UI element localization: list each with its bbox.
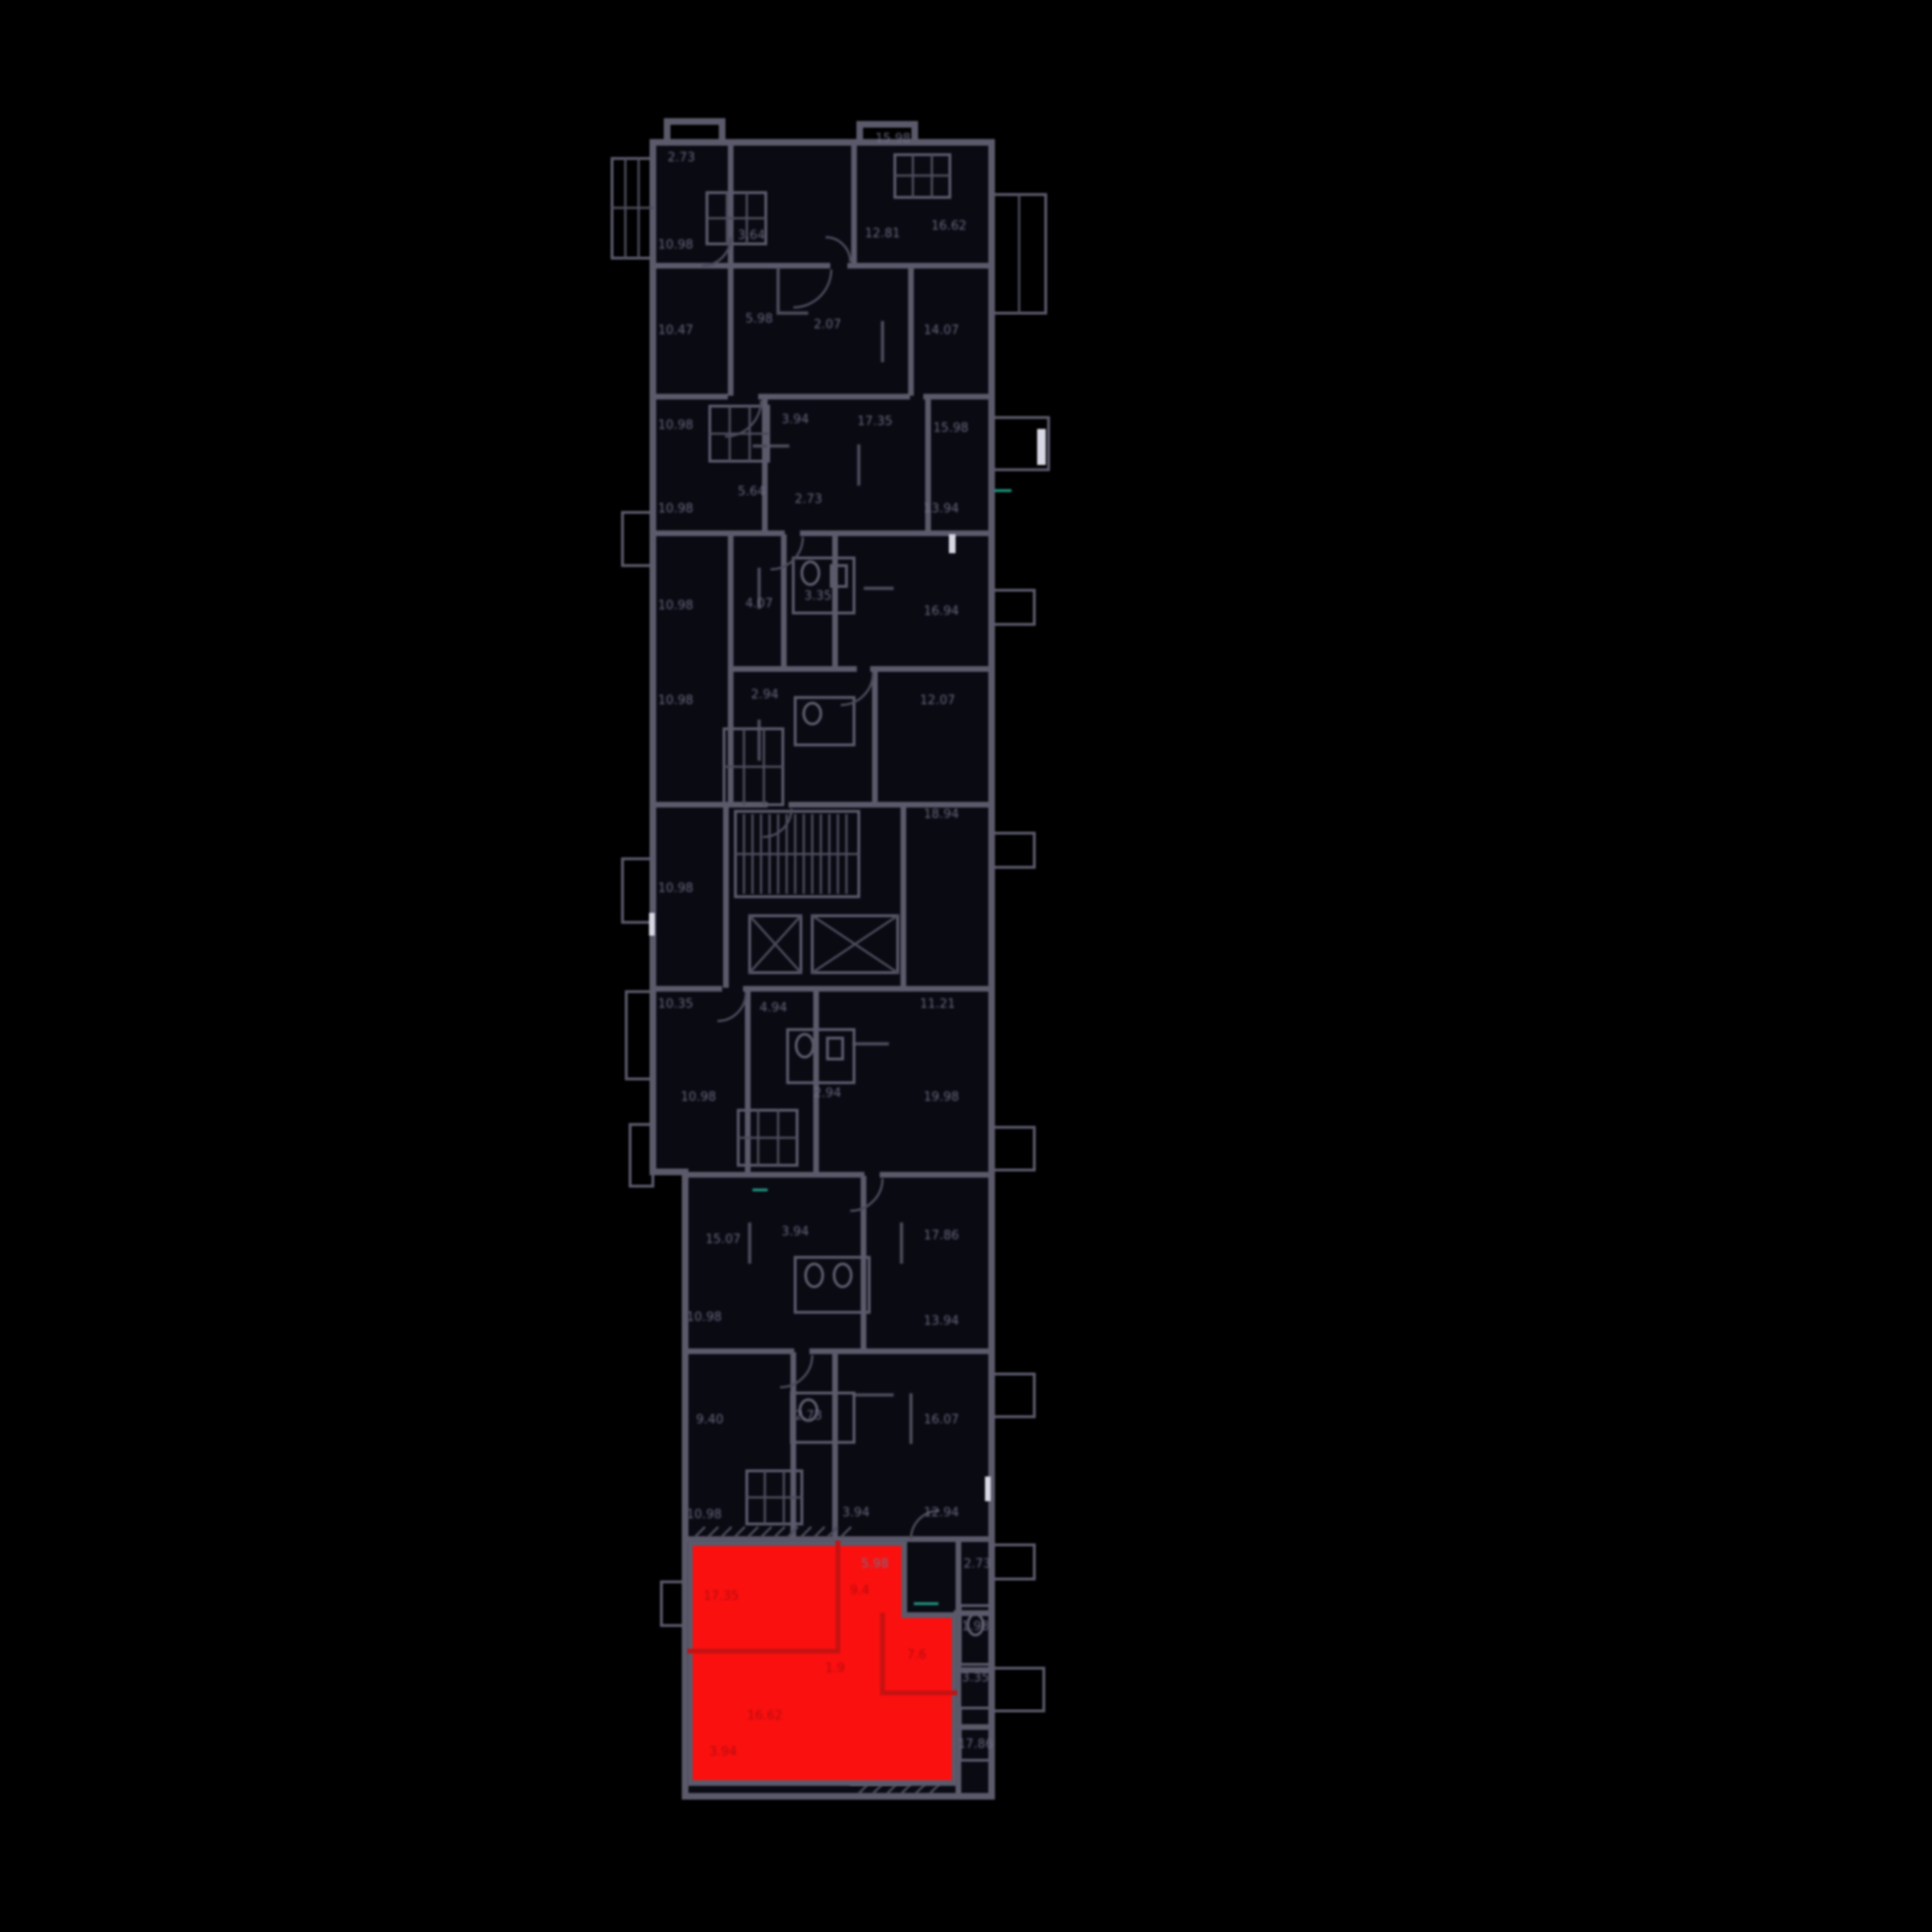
area-label: 2.94 — [814, 1087, 842, 1101]
area-label: 4.07 — [746, 597, 773, 611]
area-label: 10.98 — [658, 418, 693, 433]
floor-plan: 2.7315.9810.983.6412.8116.6210.475.982.0… — [0, 0, 1932, 1932]
area-label: 17.35 — [857, 415, 892, 429]
area-label: 10.98 — [658, 599, 693, 613]
area-label: 4.94 — [760, 1001, 788, 1015]
area-label: 10.98 — [686, 1310, 721, 1325]
area-label: 2.73 — [964, 1557, 992, 1571]
area-label: 3.94 — [782, 413, 809, 427]
area-label: 1.9 — [826, 1662, 845, 1676]
area-label: 5.98 — [746, 312, 773, 326]
area-label: 12.07 — [920, 694, 955, 708]
area-label: 19.98 — [923, 1090, 958, 1105]
area-label: 18.94 — [923, 808, 958, 822]
area-label: 3.94 — [710, 1745, 737, 1759]
floor-plan-page: 2.7315.9810.983.6412.8116.6210.475.982.0… — [0, 0, 1932, 1932]
area-label: 10.98 — [658, 694, 693, 708]
area-label: 10.98 — [658, 238, 693, 252]
area-label: 10.98 — [658, 882, 693, 896]
area-label: 5.64 — [738, 485, 766, 499]
area-label: 10.98 — [680, 1090, 715, 1105]
area-label: 16.07 — [923, 1413, 958, 1427]
area-label: 11.21 — [920, 997, 955, 1012]
area-label: 12.81 — [864, 227, 900, 241]
area-label: 2.07 — [814, 318, 842, 332]
area-label: 3.94 — [843, 1506, 870, 1520]
area-label: 9.40 — [697, 1413, 724, 1427]
area-label: 16.62 — [931, 219, 966, 233]
area-label: 13.94 — [923, 502, 958, 516]
area-label: 17.35 — [703, 1589, 738, 1604]
area-label: 3.94 — [782, 1225, 809, 1239]
area-label: 5.98 — [862, 1557, 889, 1571]
area-label: 10.98 — [658, 502, 693, 516]
area-label: 2.94 — [752, 688, 779, 702]
area-label: 2.73 — [668, 151, 696, 165]
area-label: 10.98 — [686, 1508, 721, 1522]
area-label: 2.73 — [795, 492, 823, 507]
area-label: 15.07 — [705, 1233, 740, 1247]
area-label: 17.86 — [923, 1229, 958, 1243]
area-label: 16.94 — [923, 604, 958, 619]
area-label: 15.98 — [933, 421, 968, 436]
area-label: 3.35 — [962, 1671, 990, 1685]
area-label: 1.98 — [962, 1620, 990, 1634]
area-label: 3.35 — [805, 589, 832, 604]
area-label: 12.94 — [923, 1506, 958, 1520]
area-label: 16.62 — [747, 1709, 782, 1723]
area-label: 3.64 — [738, 229, 766, 243]
area-label: 14.07 — [923, 324, 958, 338]
area-label: 17.86 — [957, 1737, 993, 1752]
area-label: 13.94 — [923, 1314, 958, 1328]
balcony — [992, 195, 1049, 1711]
area-label: 7.6 — [907, 1648, 927, 1663]
area-label: 10.35 — [658, 997, 693, 1012]
area-label: 2.73 — [795, 1409, 823, 1423]
area-label: 9.4 — [850, 1584, 870, 1598]
area-label: 10.47 — [658, 324, 693, 338]
area-label: 15.98 — [875, 132, 910, 146]
